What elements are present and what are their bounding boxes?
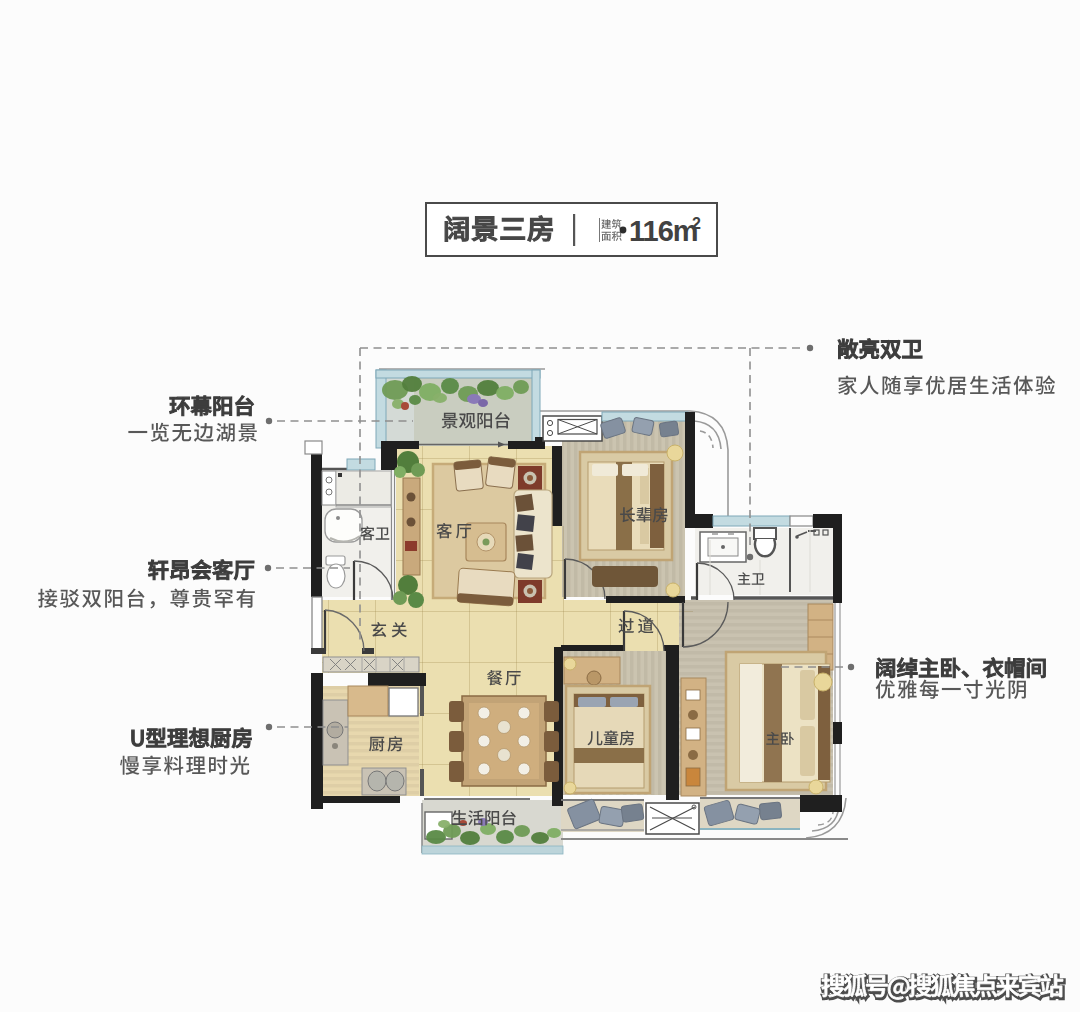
svg-text:116m: 116m (629, 215, 698, 247)
svg-text:2: 2 (692, 215, 701, 232)
